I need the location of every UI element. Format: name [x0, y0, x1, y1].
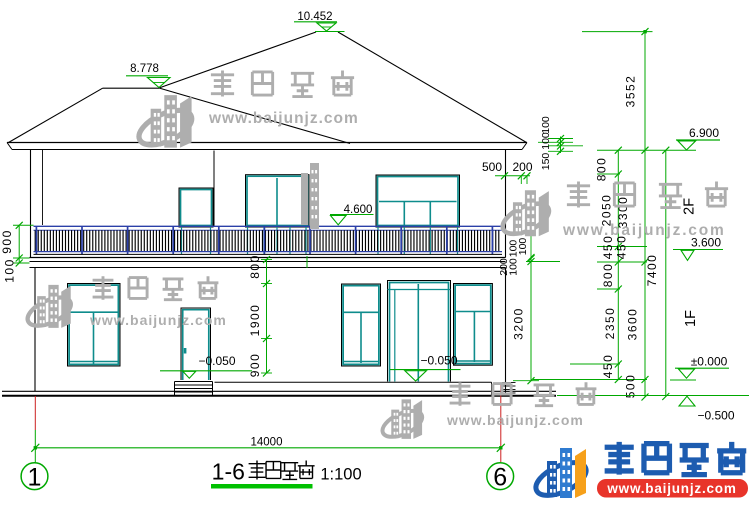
svg-text:www.baijunjz.com: www.baijunjz.com — [562, 222, 726, 239]
svg-text:150: 150 — [540, 153, 552, 171]
svg-text:800: 800 — [248, 254, 262, 279]
svg-text:500: 500 — [482, 160, 502, 174]
svg-text:900: 900 — [248, 353, 262, 378]
svg-text:−0.050: −0.050 — [198, 354, 235, 368]
svg-text:450: 450 — [601, 354, 615, 379]
svg-text:www.baijunjz.com: www.baijunjz.com — [208, 110, 359, 127]
svg-text:500: 500 — [624, 374, 638, 399]
svg-text:1900: 1900 — [248, 304, 262, 337]
svg-text:−0.050: −0.050 — [420, 354, 457, 368]
svg-text:1: 1 — [28, 463, 42, 491]
svg-text:800: 800 — [595, 157, 609, 182]
svg-text:200: 200 — [512, 160, 532, 174]
svg-text:10.452: 10.452 — [297, 11, 332, 23]
svg-text:900: 900 — [0, 229, 14, 254]
svg-text:3200: 3200 — [512, 307, 526, 340]
svg-text:6: 6 — [493, 463, 507, 491]
svg-text:2350: 2350 — [603, 307, 617, 340]
svg-text:100: 100 — [540, 132, 552, 150]
svg-text:1F: 1F — [683, 310, 699, 327]
svg-text:−0.500: −0.500 — [697, 409, 734, 423]
svg-text:100: 100 — [540, 116, 552, 134]
svg-text:14000: 14000 — [251, 437, 283, 449]
svg-text:100: 100 — [517, 238, 529, 256]
svg-text:www.baijunjz.com: www.baijunjz.com — [89, 312, 227, 328]
svg-text:7400: 7400 — [645, 254, 659, 287]
svg-text:6.900: 6.900 — [689, 126, 719, 140]
svg-text:100: 100 — [3, 258, 17, 283]
svg-text:100: 100 — [508, 258, 520, 276]
svg-text:800: 800 — [601, 263, 615, 288]
svg-text:±0.000: ±0.000 — [691, 355, 728, 369]
svg-text:www.baijunjz.com: www.baijunjz.com — [446, 412, 584, 428]
svg-text:3552: 3552 — [624, 75, 638, 108]
svg-text:8.778: 8.778 — [130, 63, 159, 75]
svg-text:1:100: 1:100 — [320, 466, 361, 484]
svg-text:2F: 2F — [681, 198, 697, 215]
svg-text:1-6: 1-6 — [212, 459, 245, 485]
svg-text:3600: 3600 — [626, 308, 640, 341]
svg-text:www.baijunjz.com: www.baijunjz.com — [606, 481, 736, 496]
